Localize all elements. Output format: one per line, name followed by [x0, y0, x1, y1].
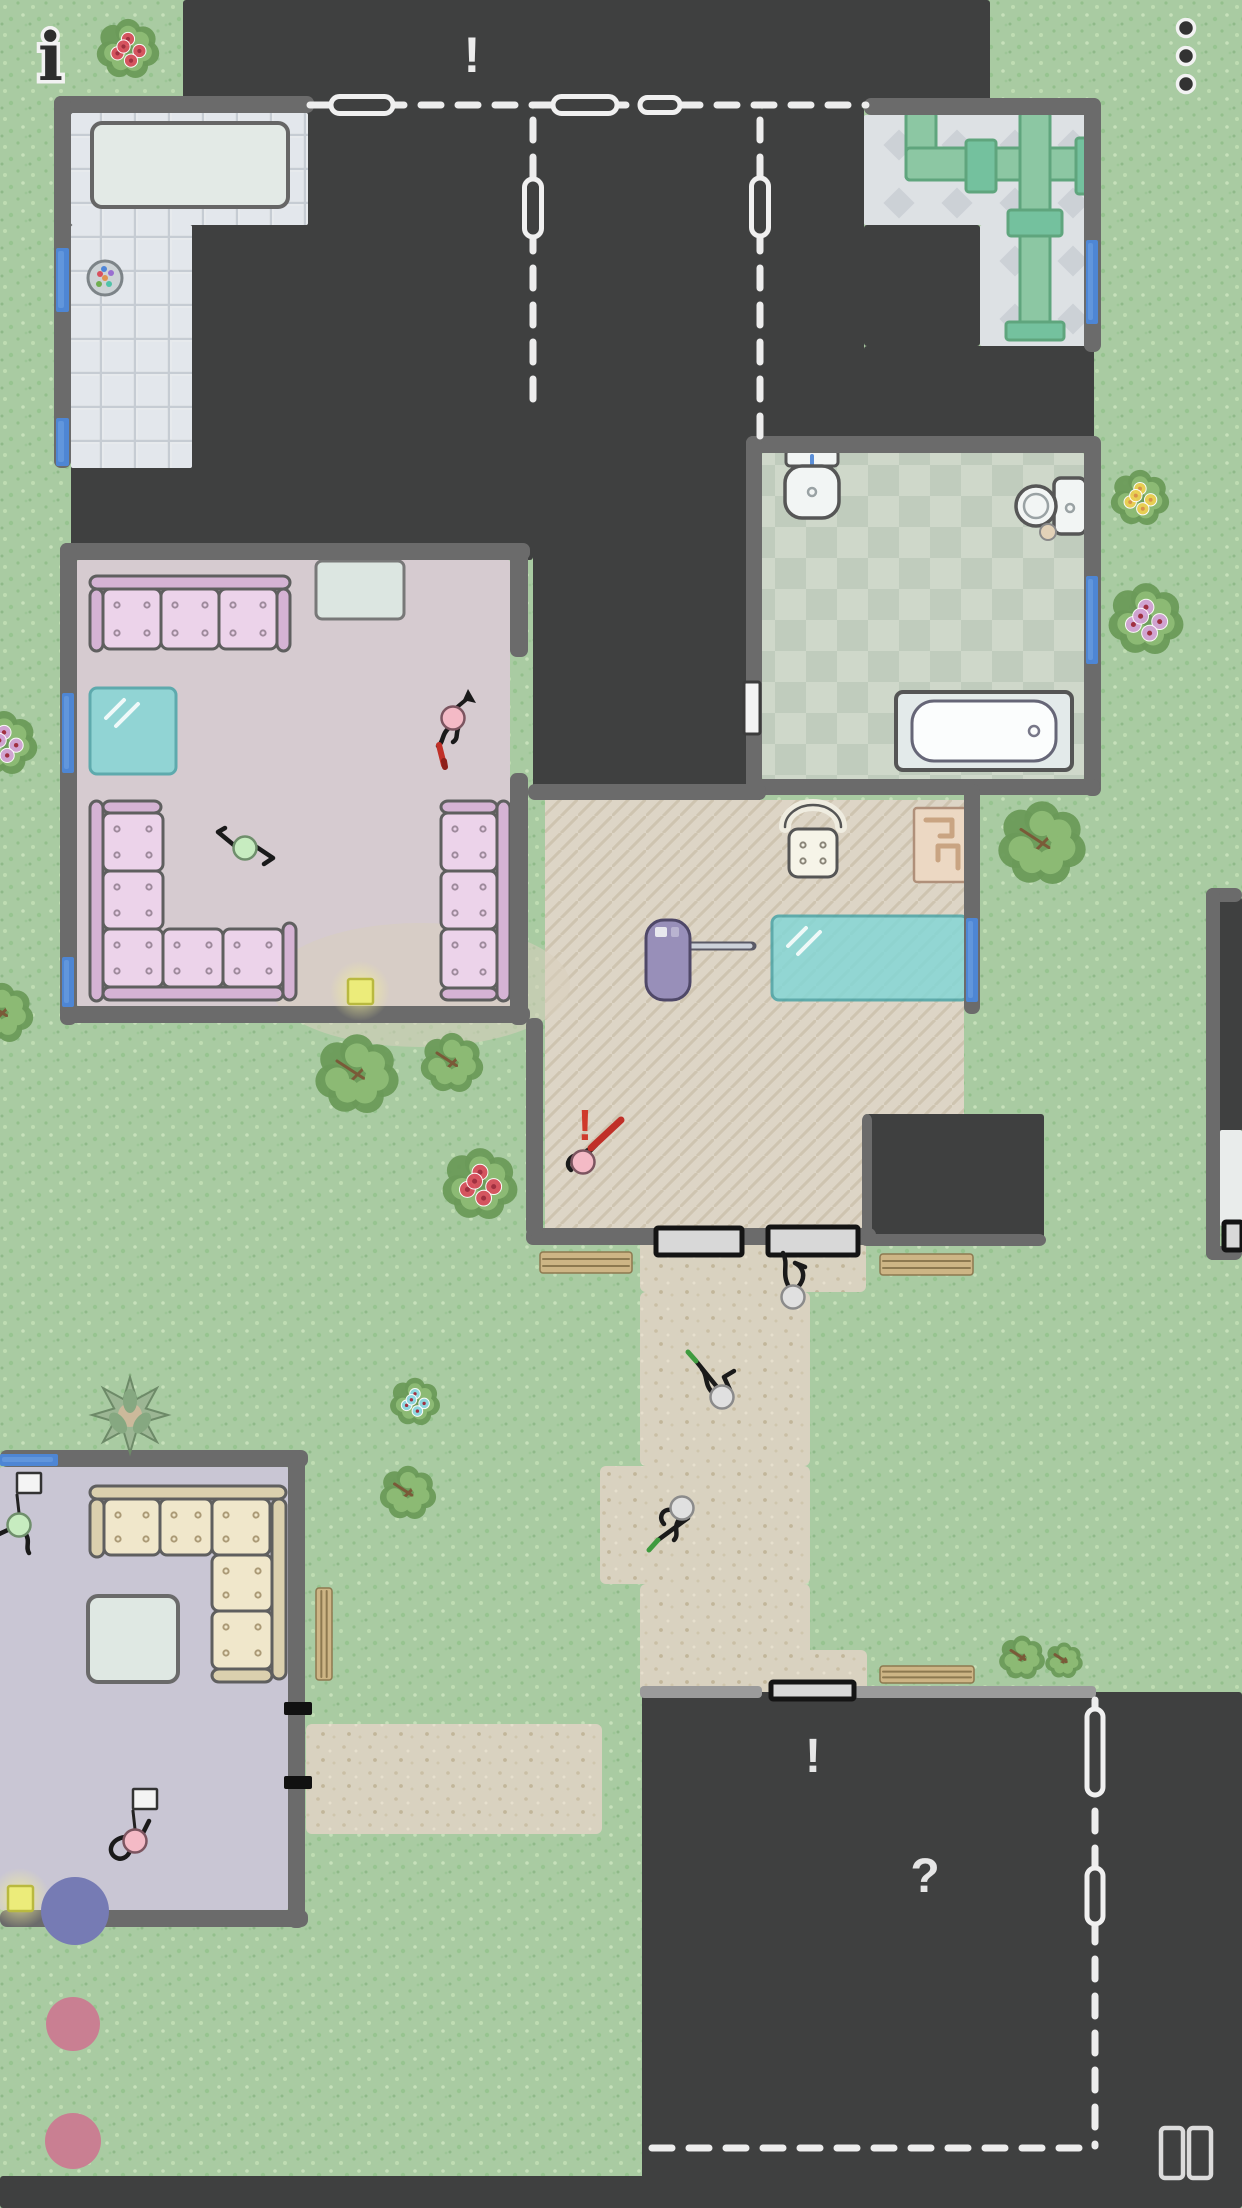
wall [60, 1006, 530, 1023]
wall-faded [854, 1686, 1096, 1698]
token-blue[interactable] [41, 1877, 109, 1945]
pink-sofa-right [441, 801, 510, 1001]
window [1086, 240, 1098, 324]
unexplored-region [866, 1114, 1044, 1240]
unexplored-region [533, 107, 762, 800]
marker-alert-top: ! [464, 27, 481, 83]
marker-question-building: ? [910, 1850, 939, 1903]
cabinet [316, 561, 404, 619]
window [62, 957, 74, 1007]
fog-door-symbol [752, 178, 769, 236]
star-plant [92, 1377, 168, 1453]
window [0, 1454, 58, 1466]
fog-door-symbol [525, 179, 542, 237]
doormat[interactable] [768, 1227, 858, 1255]
doormat[interactable] [771, 1682, 854, 1699]
window [56, 248, 69, 312]
unexplored-region [642, 1692, 1242, 2208]
white-table [88, 1596, 178, 1682]
item-yellow-square[interactable] [330, 961, 390, 1021]
pipe-joint [1006, 322, 1064, 340]
glass-table [90, 688, 176, 774]
bench [540, 1252, 632, 1273]
unexplored-region [183, 0, 990, 107]
window [62, 693, 74, 773]
bench [880, 1666, 974, 1683]
doormat[interactable] [656, 1228, 742, 1255]
fog-door-symbol [553, 97, 617, 114]
fog-door-symbol [331, 97, 393, 114]
floor-flat [1220, 1130, 1242, 1226]
pipe-joint [1008, 210, 1062, 236]
pipe-joint [966, 140, 996, 192]
bench [316, 1588, 332, 1680]
window [56, 418, 69, 466]
wall [54, 96, 314, 113]
pink-sofa-top [90, 576, 290, 651]
wall [1206, 888, 1220, 1260]
sink [785, 450, 839, 518]
wall [288, 1450, 305, 1928]
walkway [600, 1466, 810, 1584]
marker-alert-character: ! [578, 1101, 593, 1150]
token-pink[interactable] [45, 2113, 101, 2169]
doormat[interactable] [1224, 1222, 1242, 1250]
wall [864, 98, 1100, 115]
wall-faded [640, 1686, 762, 1698]
game-map[interactable]: !!!? i [0, 0, 1242, 2208]
wall [862, 1114, 872, 1244]
marker-alert-building: ! [805, 1730, 821, 1783]
wall [860, 1234, 1046, 1246]
wall [526, 1018, 543, 1236]
wall [60, 543, 77, 1025]
kebab-menu-button[interactable] [1178, 20, 1195, 93]
kitchen-counter [92, 123, 288, 207]
fog-door-symbol [1087, 1709, 1103, 1795]
wall [510, 543, 528, 657]
door-opening[interactable] [284, 1702, 312, 1715]
door-opening[interactable] [284, 1776, 312, 1789]
walkway [306, 1724, 602, 1834]
wall [528, 784, 766, 800]
bathtub [896, 692, 1072, 770]
floor-tile [71, 225, 192, 468]
fog-door-symbol [1087, 1868, 1103, 1924]
wall [510, 773, 528, 1025]
wall [746, 779, 1100, 795]
window [966, 918, 978, 1002]
rug [914, 808, 968, 882]
fog-door-symbol [640, 98, 680, 113]
bench [880, 1254, 973, 1275]
unexplored-region [762, 107, 864, 453]
glass-table [772, 916, 968, 1000]
flower-pot [88, 261, 122, 295]
info-button[interactable]: i [38, 18, 63, 96]
unexplored-region [864, 225, 980, 346]
wall [60, 543, 530, 560]
wall [746, 436, 762, 796]
token-pink[interactable] [46, 1997, 100, 2051]
window [1086, 576, 1098, 664]
wall [746, 436, 1100, 453]
door-white[interactable] [744, 682, 760, 734]
unexplored-region [0, 2176, 1242, 2208]
